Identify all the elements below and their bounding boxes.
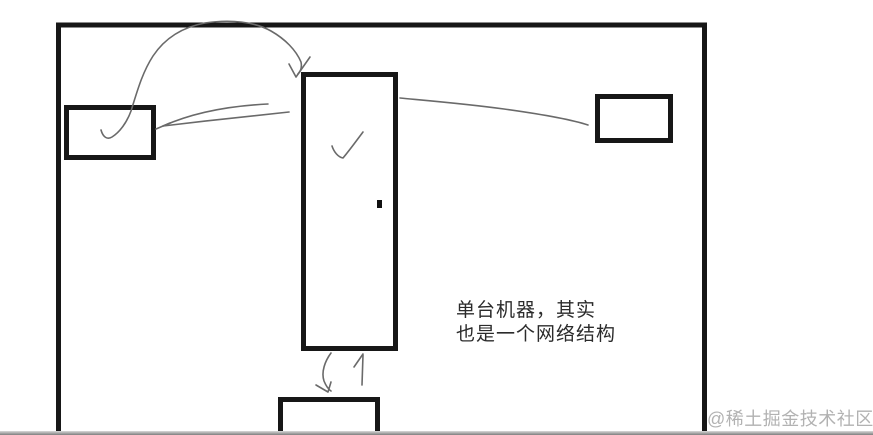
- whiteboard-sketch: 单台机器，其实 也是一个网络结构 @稀土掘金技术社区: [0, 0, 873, 435]
- center-tall-node-box: [304, 75, 396, 349]
- line-center-to-right: [400, 98, 588, 125]
- watermark-text: @稀土掘金技术社区: [707, 405, 873, 431]
- left-node-box: [67, 108, 154, 158]
- bottom-node-box: [281, 400, 378, 435]
- annotation-line-2: 也是一个网络结构: [456, 323, 616, 347]
- annotation-text: 单台机器，其实 也是一个网络结构: [456, 299, 616, 347]
- up-arrow-arrowhead-icon: [354, 354, 363, 367]
- right-node-box: [598, 97, 671, 141]
- bottom-edge-bar: [0, 431, 873, 435]
- double-stroke-arrow-upper: [163, 104, 268, 126]
- small-black-dot: [377, 200, 382, 208]
- down-arrow-arrowhead-icon: [316, 382, 331, 392]
- sketch-canvas: [0, 0, 873, 435]
- up-arrow-bottom-to-center: [362, 355, 363, 385]
- annotation-line-1: 单台机器，其实: [456, 299, 616, 323]
